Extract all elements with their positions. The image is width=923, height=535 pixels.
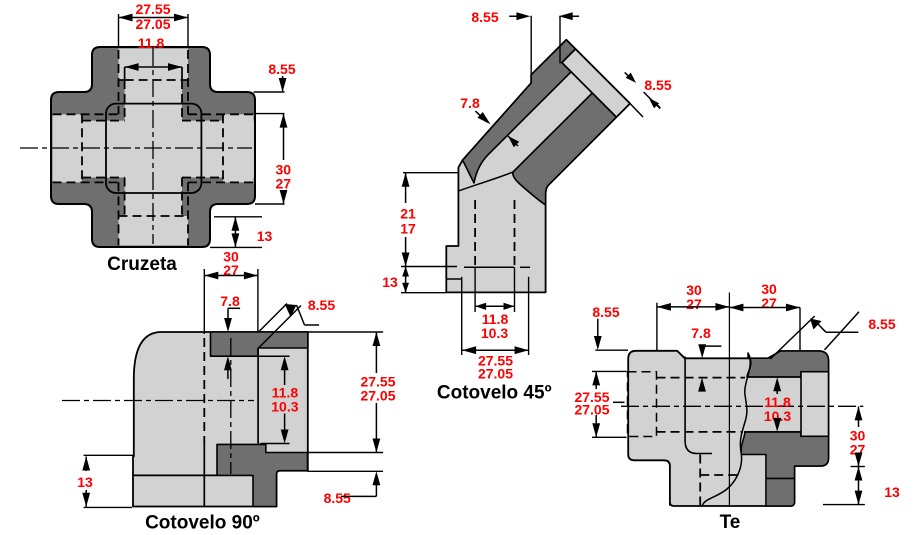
svg-text:Cotovelo 90º: Cotovelo 90º	[145, 513, 260, 531]
svg-text:Cruzeta: Cruzeta	[107, 254, 177, 275]
svg-text:10.3: 10.3	[481, 325, 508, 341]
svg-text:8.55: 8.55	[471, 9, 498, 25]
svg-text:21: 21	[400, 206, 416, 222]
svg-text:8.55: 8.55	[644, 77, 671, 93]
svg-text:Te: Te	[720, 512, 741, 530]
svg-text:17: 17	[400, 221, 416, 237]
svg-text:27.05: 27.05	[478, 366, 513, 382]
svg-text:10.3: 10.3	[271, 399, 298, 415]
svg-text:27.55: 27.55	[135, 1, 170, 17]
svg-text:8.55: 8.55	[268, 61, 295, 77]
svg-text:8.55: 8.55	[324, 490, 351, 506]
svg-text:27.05: 27.05	[574, 402, 609, 418]
svg-text:7.8: 7.8	[691, 325, 711, 341]
svg-text:27.05: 27.05	[135, 16, 170, 32]
svg-text:8.55: 8.55	[592, 304, 619, 320]
svg-text:27: 27	[686, 296, 702, 312]
svg-text:27: 27	[761, 295, 777, 311]
svg-text:27.05: 27.05	[360, 388, 395, 404]
svg-text:8.55: 8.55	[868, 316, 895, 332]
svg-text:8.55: 8.55	[308, 297, 335, 313]
svg-text:27: 27	[276, 176, 292, 192]
svg-text:7.8: 7.8	[220, 293, 240, 309]
svg-text:13: 13	[382, 274, 398, 290]
svg-text:13: 13	[77, 474, 93, 490]
svg-text:7.8: 7.8	[460, 95, 480, 111]
svg-text:11.8: 11.8	[138, 35, 165, 51]
svg-text:13: 13	[257, 228, 273, 244]
svg-text:13: 13	[884, 484, 900, 500]
svg-text:Cotovelo 45º: Cotovelo 45º	[437, 382, 552, 403]
